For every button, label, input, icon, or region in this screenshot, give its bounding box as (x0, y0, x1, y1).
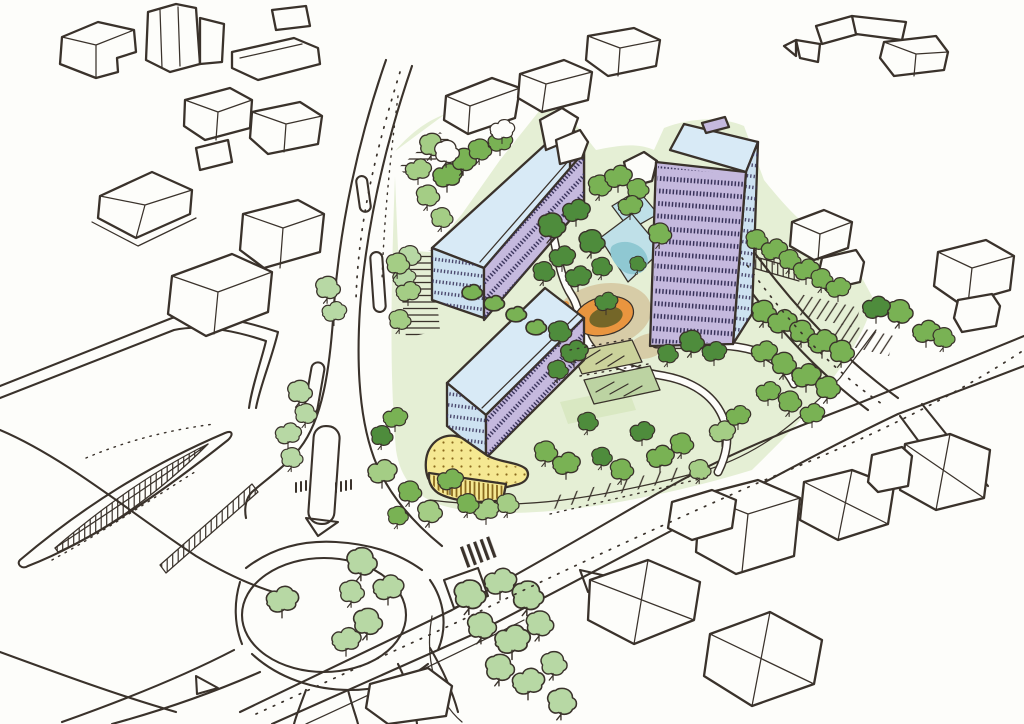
tower-facade-windows (652, 166, 744, 344)
context-building (954, 294, 1000, 332)
sketch-page (0, 0, 1024, 724)
hedge-shrub (484, 296, 504, 311)
context-building (272, 6, 310, 30)
context-building (146, 4, 200, 72)
hedge-shrub (526, 320, 546, 335)
site-sketch (0, 0, 1024, 724)
hedge-shrub (462, 285, 482, 300)
hedge-shrub (506, 307, 526, 322)
context-building (200, 18, 224, 64)
context-house (868, 447, 912, 492)
